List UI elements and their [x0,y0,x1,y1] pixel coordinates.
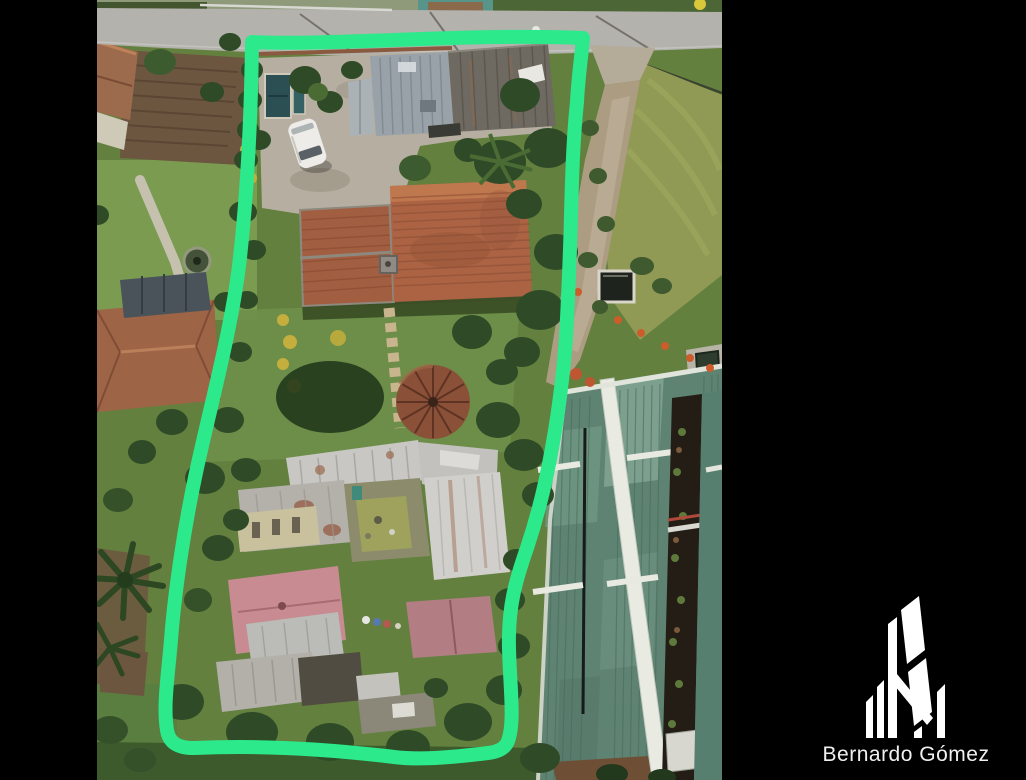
building-logo-icon [854,588,958,740]
screenshot-frame: Bernardo Gómez [0,0,1026,780]
brand-name: Bernardo Gómez [800,743,1012,767]
photo-mask-left [0,0,97,780]
water-tank-well [599,271,634,302]
brand-watermark: Bernardo Gómez [800,588,1012,767]
